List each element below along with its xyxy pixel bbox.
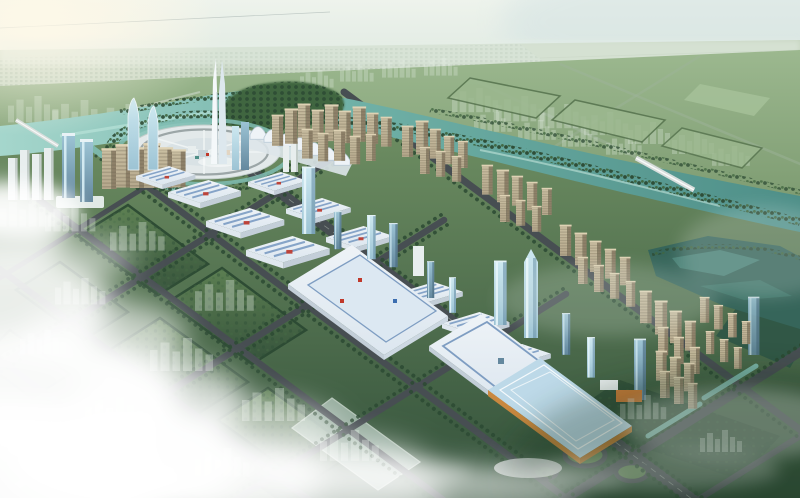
aerial-city-rendering: Aerial bird's-eye architectural renderin…	[0, 0, 800, 498]
scene-svg	[0, 0, 800, 498]
